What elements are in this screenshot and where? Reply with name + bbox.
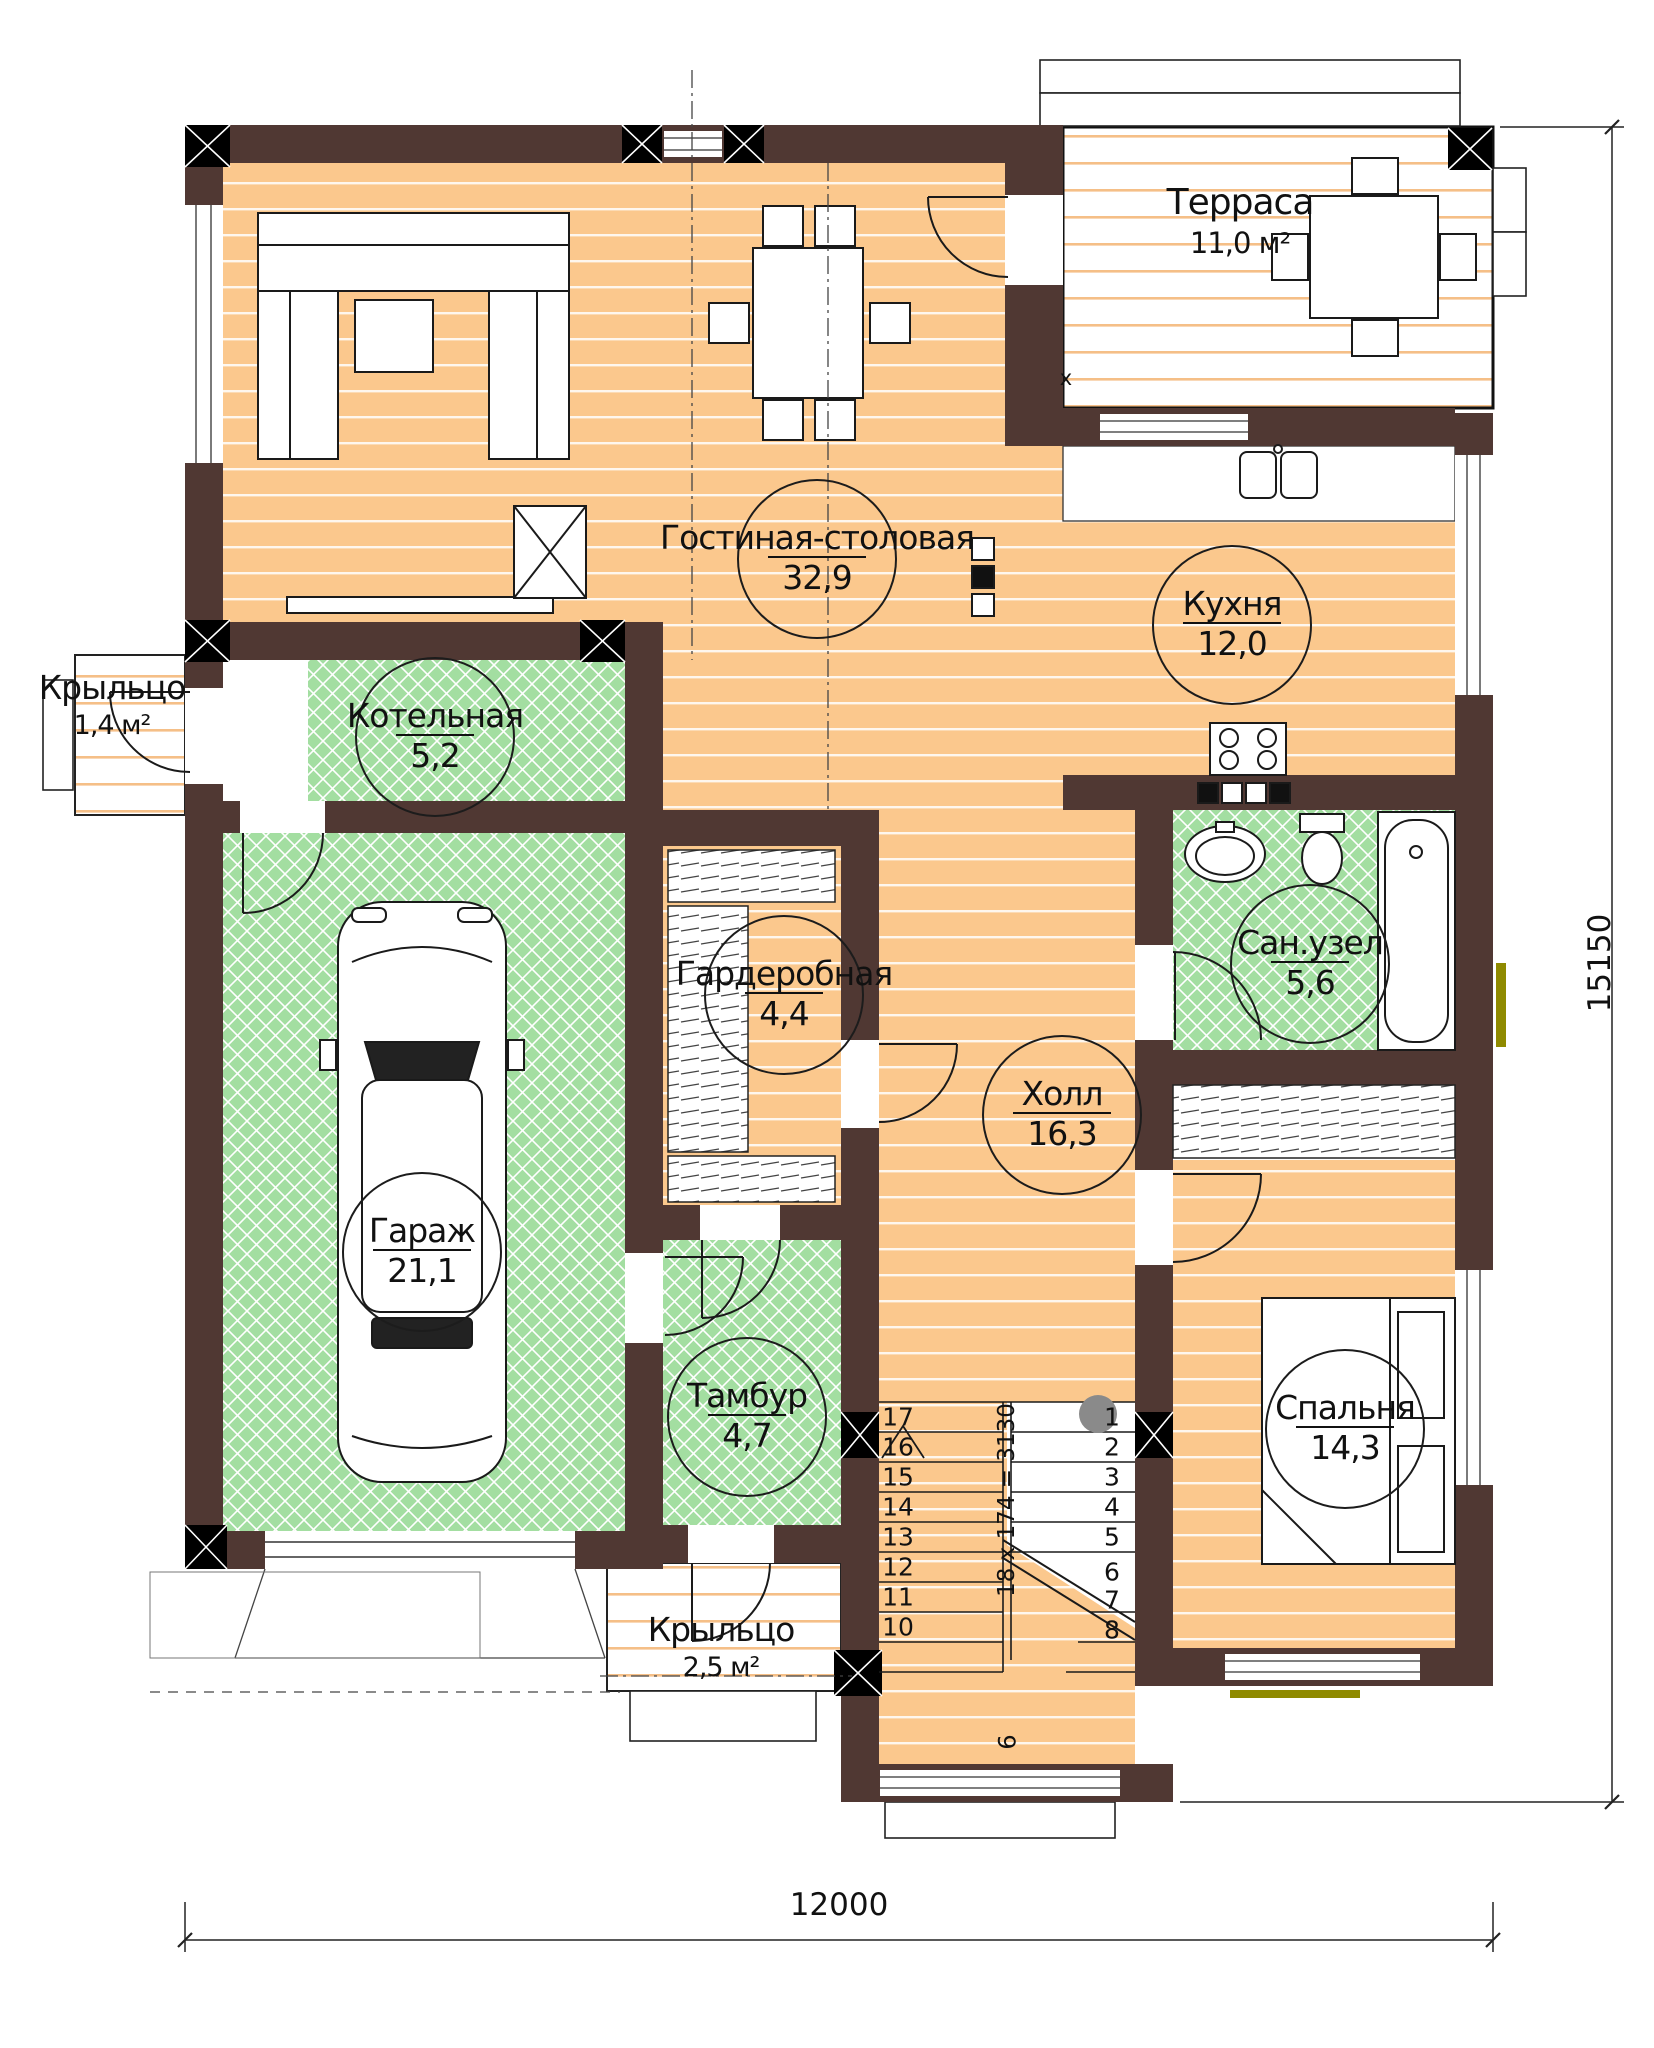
room-name: Терраса (1167, 184, 1314, 222)
room-label-terrace: Терраса 11,0 м² (1167, 184, 1314, 260)
door-gap-wardrobe-hall (841, 1040, 879, 1128)
stair-number: 5 (1104, 1523, 1120, 1552)
ottoman (355, 300, 433, 372)
stair-number: 4 (1104, 1493, 1120, 1522)
room-name: Гардеробная (676, 957, 893, 992)
room-label-porch-bottom: Крыльцо 2,5 м² (648, 1613, 795, 1683)
column-marker (185, 1525, 227, 1569)
column-marker (580, 620, 625, 662)
boiler-door-swing-area (223, 660, 308, 801)
terrace-step (1040, 60, 1460, 93)
stair-formula: 18 x 174 = 3130 (994, 1403, 1020, 1597)
column-marker (1448, 128, 1492, 170)
window-living-left (185, 205, 223, 463)
stair-number: 11 (882, 1583, 914, 1612)
bathtub (1378, 812, 1455, 1050)
door-gap-front (688, 1525, 774, 1563)
room-area: 14,3 (1296, 1426, 1393, 1467)
room-label-vestibule: Тамбур 4,7 (667, 1337, 827, 1497)
fireplace (514, 506, 586, 598)
floor-living-lower (623, 622, 1005, 810)
stair-number: 15 (882, 1463, 914, 1492)
terrace-step (1040, 93, 1460, 126)
room-name: Холл (1022, 1077, 1103, 1112)
terrace-side-step (1493, 232, 1526, 296)
stair-number: 17 (882, 1403, 914, 1432)
wardrobe-unit (668, 1156, 835, 1202)
door-gap-bedroom (1135, 1170, 1173, 1265)
room-name: Гостиная-столовая (660, 521, 974, 556)
stair-number: 6 (1104, 1558, 1120, 1587)
door-gap-vestibule-wardrobe (700, 1205, 780, 1240)
window-bedroom-bottom (1225, 1654, 1420, 1680)
door-gap-garage-vestibule (625, 1253, 663, 1343)
terrace-side-step (1493, 168, 1526, 232)
stove (1210, 723, 1286, 775)
window-kitchen-top (1100, 414, 1248, 440)
room-name: Спальня (1275, 1391, 1415, 1426)
stair-number: 14 (882, 1493, 914, 1522)
dimension-width: 12000 (790, 1887, 889, 1923)
stair-number-mid: 9 (992, 1734, 1020, 1749)
room-area: 21,1 (373, 1249, 470, 1290)
garage-gate (265, 1531, 575, 1569)
room-label-bathroom: Сан.узел 5,6 (1230, 884, 1390, 1044)
room-area: 4,4 (745, 992, 822, 1033)
room-label-hall: Холл 16,3 (982, 1035, 1142, 1195)
wardrobe-unit (668, 850, 835, 902)
room-area: 12,0 (1183, 622, 1280, 663)
room-area: 5,2 (396, 734, 473, 775)
door-gap-porch-left (185, 688, 223, 784)
room-label-porch-left: Крыльцо 1,4 м² (39, 671, 186, 741)
dimension-height: 15150 (1582, 914, 1618, 1013)
room-area: 4,7 (708, 1414, 785, 1455)
toilet (1300, 814, 1344, 884)
stair-number: 3 (1104, 1463, 1120, 1492)
stair-number: 7 (1104, 1586, 1120, 1615)
column-marker (834, 1650, 882, 1696)
room-name: Тамбур (687, 1379, 807, 1414)
window-mark-bottom (1230, 1690, 1360, 1698)
stair-number: 10 (882, 1613, 914, 1642)
stair-number: 16 (882, 1433, 914, 1462)
room-area: 32,9 (768, 556, 865, 597)
column-marker (185, 620, 230, 662)
room-name: Крыльцо (39, 671, 186, 706)
room-label-wardrobe: Гардеробная 4,4 (704, 915, 864, 1075)
door-gap-bathroom (1135, 945, 1173, 1040)
room-area: 1,4 м² (39, 710, 186, 741)
room-area: 16,3 (1013, 1112, 1110, 1153)
stair-number: 8 (1104, 1616, 1120, 1645)
column-marker (724, 125, 764, 163)
column-marker (185, 125, 230, 167)
window-mark-right (1496, 963, 1506, 1047)
room-label-boiler: Котельная 5,2 (355, 657, 515, 817)
stair-number: 2 (1104, 1433, 1120, 1462)
room-label-garage: Гараж 21,1 (342, 1172, 502, 1332)
door-gap-terrace (1005, 195, 1063, 285)
room-area: 2,5 м² (648, 1652, 795, 1683)
room-label-kitchen: Кухня 12,0 (1152, 545, 1312, 705)
floor-corridor (1005, 413, 1063, 810)
tv-console (287, 597, 553, 613)
window-stairbay-bottom (880, 1770, 1120, 1796)
column-marker (841, 1412, 879, 1458)
window-living-top (664, 131, 722, 157)
room-name: Кухня (1183, 587, 1282, 622)
column-marker (1135, 1412, 1173, 1458)
stairbay-outside-step (885, 1802, 1115, 1838)
bedroom-closet (1173, 1085, 1455, 1158)
room-area: 11,0 м² (1167, 226, 1314, 260)
room-area: 5,6 (1271, 961, 1348, 1002)
room-label-bedroom: Спальня 14,3 (1265, 1349, 1425, 1509)
stair-number: 12 (882, 1553, 914, 1582)
stair-number: 1 (1104, 1403, 1120, 1432)
room-name: Котельная (347, 699, 523, 734)
floor-plan-page: Гостиная-столовая 32,9 Кухня 12,0 Котель… (0, 0, 1654, 2048)
stair-number: 13 (882, 1523, 914, 1552)
column-marker (622, 125, 662, 163)
door-gap-boiler-garage (240, 801, 325, 833)
room-name: Крыльцо (648, 1613, 795, 1648)
window-kitchen-right (1455, 455, 1493, 695)
porch-bottom-step (630, 1691, 816, 1741)
room-name: Гараж (369, 1214, 475, 1249)
vent-marker: х (1060, 366, 1072, 390)
window-bedroom-right (1455, 1270, 1493, 1485)
room-label-living: Гостиная-столовая 32,9 (737, 479, 897, 639)
room-name: Сан.узел (1237, 926, 1383, 961)
